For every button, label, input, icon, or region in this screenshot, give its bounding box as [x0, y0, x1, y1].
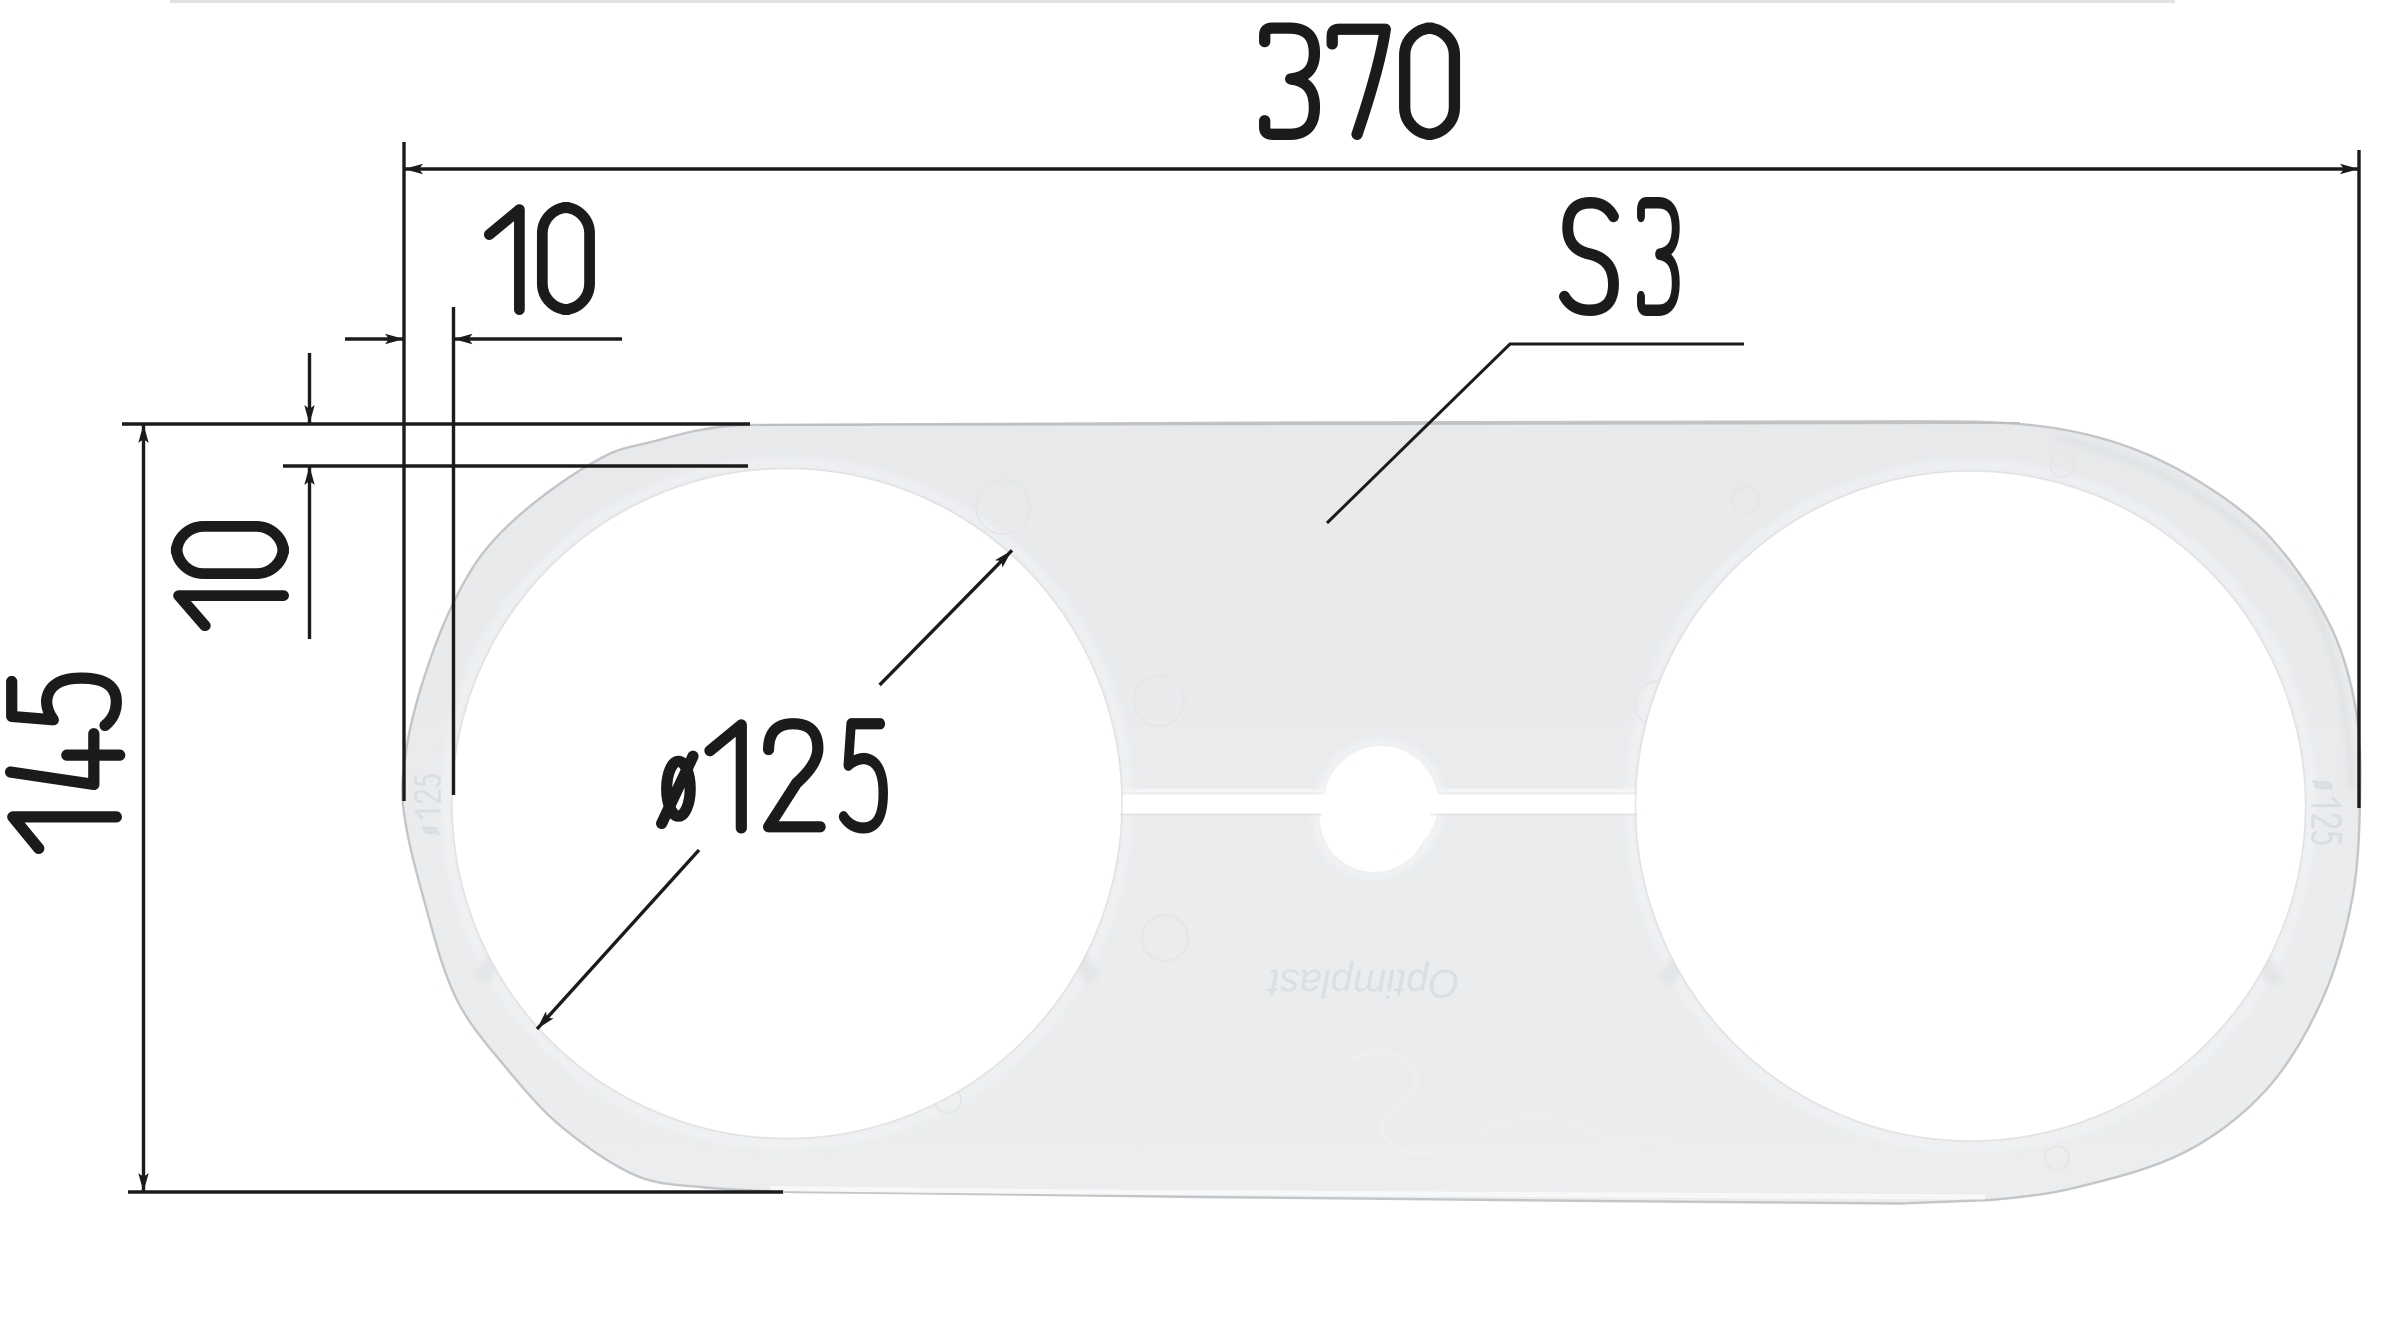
svg-text:Optimplast: Optimplast — [1267, 961, 1460, 1005]
